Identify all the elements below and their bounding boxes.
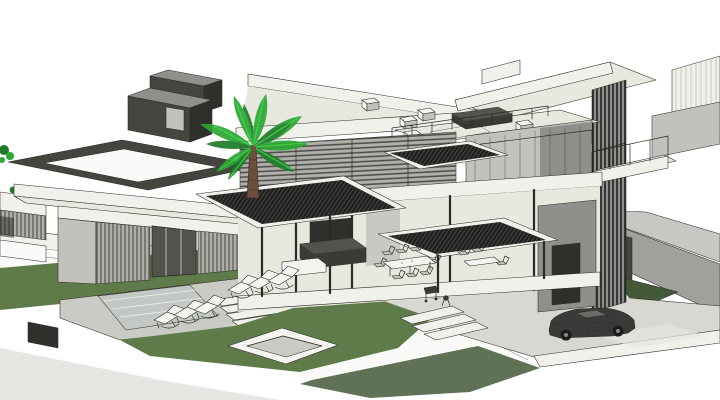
ground-right-walls xyxy=(538,200,596,312)
architectural-render-viewport xyxy=(0,0,720,400)
far-right-gray-band xyxy=(652,102,720,158)
under-platform-notch xyxy=(28,322,58,348)
rooftop-box xyxy=(362,98,379,111)
terrace-armchair xyxy=(418,108,435,121)
left-wing-gable-wall xyxy=(58,218,96,284)
terrace-armchair xyxy=(400,116,417,129)
chimney-volumes xyxy=(128,70,222,142)
left-wing-window xyxy=(152,226,196,277)
render-canvas xyxy=(0,0,720,400)
roof-parapet-back xyxy=(482,60,520,84)
